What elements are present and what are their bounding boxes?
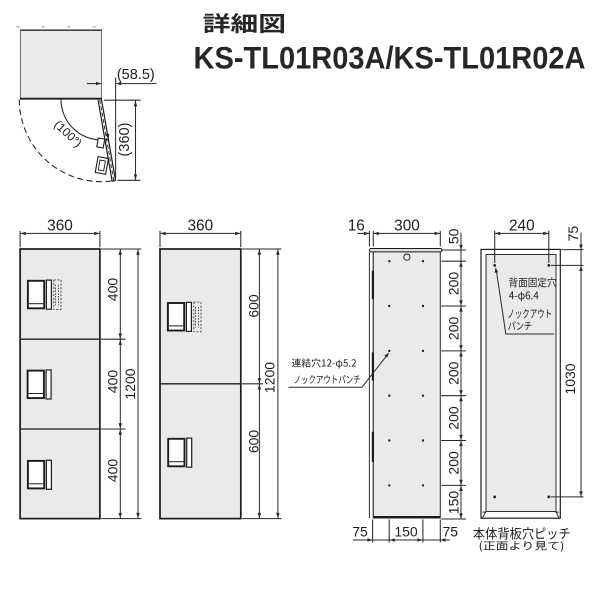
svg-text:1200: 1200: [261, 362, 277, 393]
svg-text:200: 200: [445, 272, 461, 296]
svg-text:240: 240: [509, 217, 535, 234]
svg-text:400: 400: [104, 370, 120, 394]
svg-text:(58.5): (58.5): [117, 67, 155, 83]
svg-text:150: 150: [394, 524, 418, 540]
svg-text:KS-TL01R03A/KS-TL01R02A: KS-TL01R03A/KS-TL01R02A: [194, 40, 586, 76]
svg-text:400: 400: [104, 278, 120, 302]
svg-text:1030: 1030: [562, 363, 578, 394]
svg-text:360: 360: [47, 217, 73, 234]
svg-text:75: 75: [352, 524, 368, 540]
svg-text:600: 600: [245, 294, 261, 318]
svg-text:360: 360: [187, 217, 213, 234]
svg-text:50: 50: [445, 228, 461, 244]
svg-text:200: 200: [445, 406, 461, 430]
svg-text:200: 200: [445, 317, 461, 341]
svg-text:16: 16: [348, 217, 365, 234]
svg-text:200: 200: [445, 451, 461, 475]
svg-text:(360): (360): [117, 123, 133, 157]
svg-text:300: 300: [394, 217, 420, 234]
svg-text:150: 150: [445, 491, 461, 515]
svg-text:400: 400: [104, 459, 120, 483]
svg-text:1200: 1200: [122, 368, 138, 399]
svg-text:600: 600: [245, 430, 261, 454]
svg-text:75: 75: [443, 524, 459, 540]
svg-text:75: 75: [565, 226, 581, 242]
svg-text:200: 200: [445, 361, 461, 385]
